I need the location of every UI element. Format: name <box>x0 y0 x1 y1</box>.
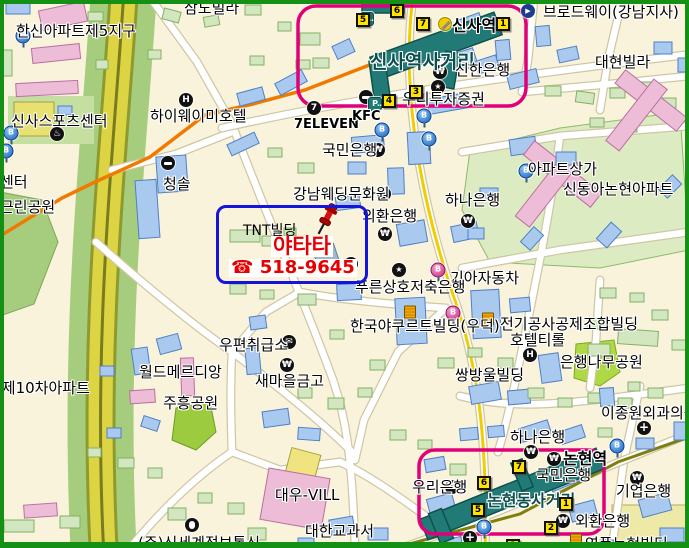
ad-phone-number: ☎ 518-9645 <box>229 259 357 277</box>
ad-callout[interactable]: TNT빌딩 야타타 ☎ 518-9645 <box>216 205 368 284</box>
map-canvas[interactable]: ₩₩₩₩₩₩₩₩₩₩★★★♥HH++✉7P··P··▶♨BBBBBBBBBBB … <box>0 0 689 548</box>
ad-shop-name: 야타타 <box>271 236 333 257</box>
